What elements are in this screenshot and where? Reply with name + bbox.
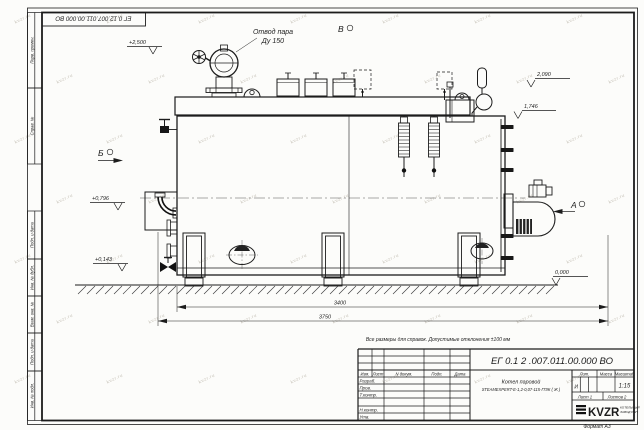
water-level-gauge [399,115,410,177]
boiler-body [177,116,505,275]
elevation-mark: +0,143 [93,257,128,271]
elevation-mark: 1,746 [514,104,556,119]
left-elbow-box [145,192,177,230]
view-letter: А [570,200,577,210]
view-label-b: Б [98,148,123,163]
pressure-gauge-siphon [472,68,492,116]
elevation-value: 1,746 [524,104,539,110]
drawing-canvas: Перв. примен. Справ. № Подп. и дата Инв.… [0,0,644,430]
rev-col-list: Лист [372,371,384,376]
logo-text: KVZR [588,407,620,419]
support-leg [322,233,344,286]
rev-col-date: Дата [453,371,466,376]
elevation-marks: +2,500 2,090 1,746 +0,796 +0,143 [90,40,588,285]
elevation-mark: +0,796 [90,196,125,210]
safety-valve [333,73,355,98]
elevation-value: +0,796 [92,196,110,202]
elevation-value: 2,090 [536,72,552,78]
drain-valve [160,258,176,273]
steam-outlet-valve [193,45,243,97]
doc-number: ЕГ 0.1 2 .007.011.00.000 ВО [491,356,614,367]
valve-handwheel [193,51,211,64]
top-doc-number: ЕГ 0.12.007.011.00.000 ВО [55,15,131,22]
top-inverted-stamp: ЕГ 0.12.007.011.00.000 ВО [42,13,146,27]
manhole-left [226,240,258,270]
row-tkontr: Т.контр. [360,393,378,398]
product-name: Котел паровой [502,379,541,386]
rev-col-sign: Подп. [431,371,442,376]
logo-sub2: ЗАВОД РЭП [620,410,639,414]
stamp-vzam-inv: Взам. инв. № [29,301,34,327]
elevation-value: +2,500 [129,40,147,46]
manhole-right [471,238,493,264]
kvzr-logo: KVZR КОТЕЛЬНЫЙ ЗАВОД РЭП [576,405,640,419]
product-designation: STEAMEXPERT-Е-1,2-0,07-115-ГПЖ ( Ж ) [482,387,561,392]
lit-value: И [574,385,578,391]
view-letter: В [338,24,344,34]
sheets-total: Листов 2 [607,394,627,399]
phantom-fittings [354,70,452,100]
burner-motor [529,180,552,197]
elevation-mark: +2,500 [127,40,162,54]
steam-outlet-label-line1: Отвод пара [253,28,293,36]
row-razrab: Разраб. [360,379,376,384]
left-wall-fittings [159,120,177,273]
water-level-gauge [429,115,440,177]
title-block: Изм. Лист N докум. Подп. Дата Разраб. Пр… [358,349,640,430]
rev-col-izm: Изм. [361,371,370,376]
row-nkontr: Н.контр. [360,408,379,413]
scale-value: 1:15 [619,384,631,390]
lit-label: Лит. [579,371,590,376]
left-margin-stamps: Перв. примен. Справ. № Подп. и дата Инв.… [28,13,43,421]
view-label-a: А [553,200,585,214]
reference-note: Все размеры для справок. Допустимые откл… [366,337,511,343]
steam-outlet-callout: Отвод пара Ду 150 [236,28,293,52]
view-label-v: В [338,24,353,34]
scale-label: Масштаб [615,371,635,376]
safety-valve [305,73,327,98]
boiler-side-view: Отвод пара Ду 150 [75,28,558,294]
sheet-number: Лист 1 [577,394,592,399]
safety-valve [277,73,299,98]
elevation-value: +0,143 [95,257,113,263]
ground-hatch [78,286,554,294]
elevation-value: 0,000 [555,270,570,276]
stamp-sprav-no: Справ. № [29,116,34,135]
stamp-inv-dubl: Инв. № дубл. [29,265,34,290]
rev-col-doc: N докум. [396,371,413,376]
end-wall-bolts [501,125,514,260]
dimension-3400: 3400 [334,301,347,307]
elevation-mark: 2,090 [527,72,570,87]
stamp-inv-podl: Инв. № подл. [29,383,34,408]
logo-sub1: КОТЕЛЬНЫЙ [620,406,640,410]
steam-outlet-label-line2: Ду 150 [261,38,284,45]
dimensions: 3400 3750 [158,232,608,326]
view-letter: Б [98,148,104,158]
format-label: Формат А3 [583,424,611,430]
lifting-lug [244,89,260,97]
burner-assembly [504,180,555,236]
view-labels: Б В А [98,24,585,214]
stamp-perv-primen: Перв. примен. [29,36,34,63]
drawing-sheet: kvzr.rukvzr.rukvzr.rukvzr.rukvzr.rukvzr.… [0,0,644,430]
mass-label: Масса [600,371,613,376]
safety-valve-boxes [277,73,355,98]
support-legs [183,233,480,286]
row-utv: Утв. [360,415,370,420]
support-leg [458,233,480,286]
top-drum [175,97,470,115]
stamp-podp-data-2: Подп. и дата [29,338,34,364]
elevation-mark: 0,000 [552,270,588,285]
row-prov: Пров. [360,386,372,391]
dimension-3750: 3750 [319,315,332,321]
stamp-podp-data-1: Подп. и дата [29,221,34,247]
support-leg [183,233,205,286]
